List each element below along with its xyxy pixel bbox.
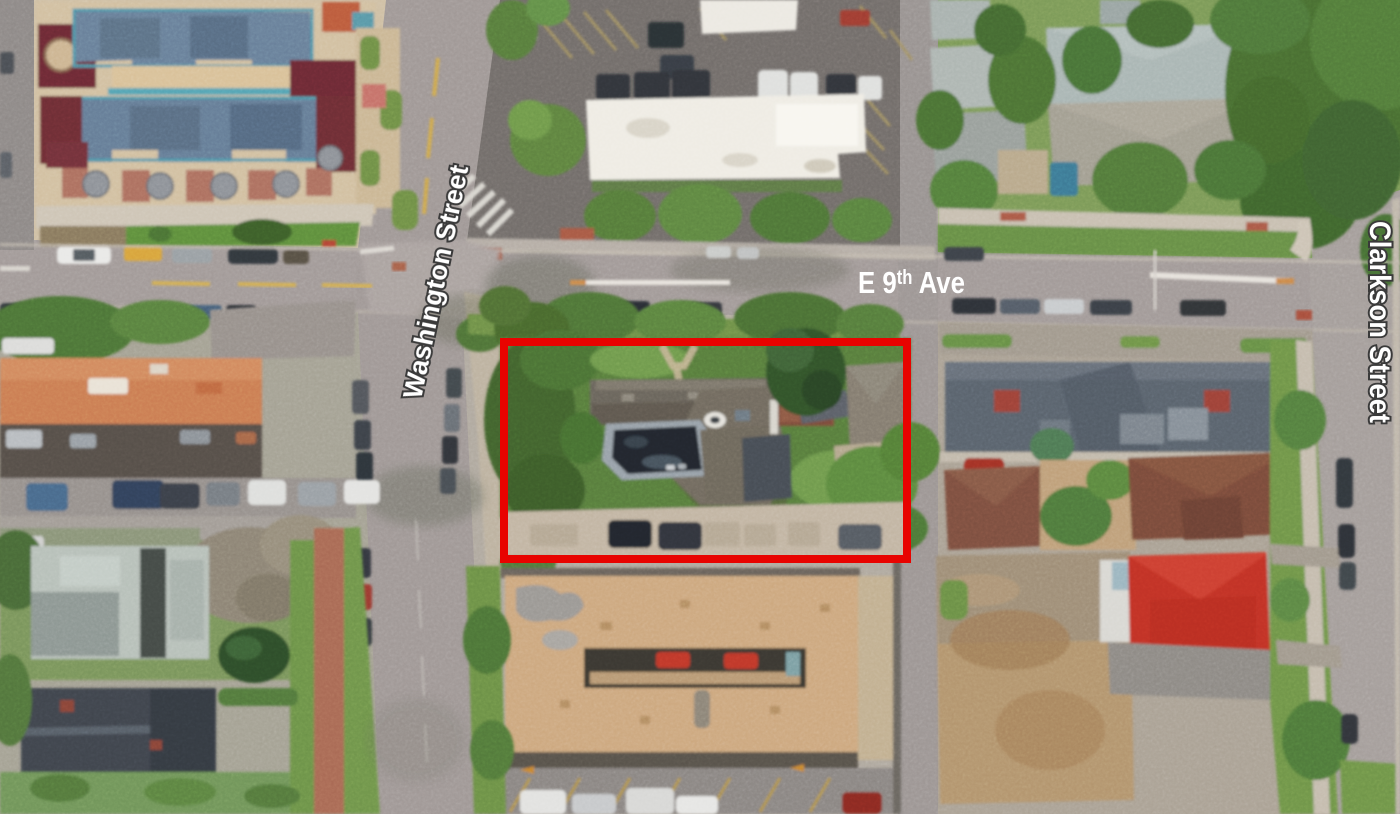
- svg-text:Clarkson Street: Clarkson Street: [1363, 221, 1396, 423]
- svg-text:E 9th Ave: E 9th Ave: [858, 265, 965, 300]
